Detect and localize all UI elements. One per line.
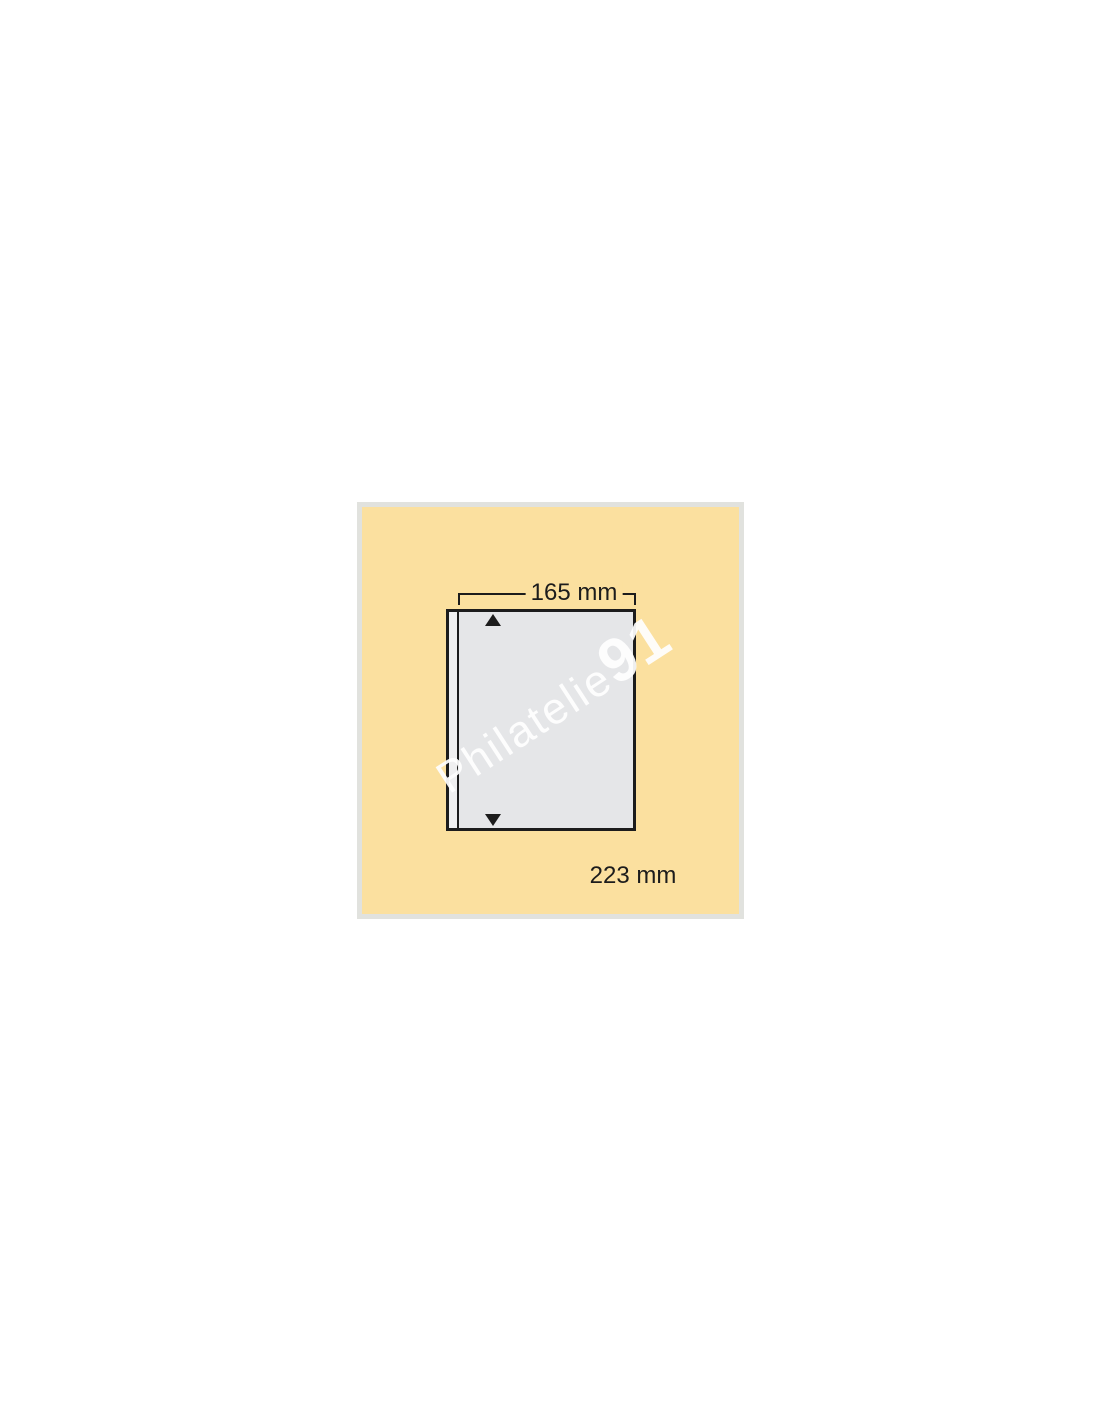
bracket-left-tick [458,593,460,605]
triangle-up-icon [485,614,501,626]
triangle-down-icon [485,814,501,826]
bracket-right-tick [634,593,636,605]
height-dimension-label: 223 mm [590,862,677,890]
product-image: 165 mm 223 mm Philatelie91 [357,502,744,919]
width-dimension-label: 165 mm [526,582,623,604]
width-dimension-bracket: 165 mm [458,593,636,605]
binding-strip [449,612,457,828]
page-canvas: { "product_image": { "description_role":… [0,0,1100,1422]
binding-strip-divider [457,612,459,828]
product-image-background: 165 mm 223 mm Philatelie91 [362,507,739,914]
album-page-outline: 223 mm [446,609,636,831]
